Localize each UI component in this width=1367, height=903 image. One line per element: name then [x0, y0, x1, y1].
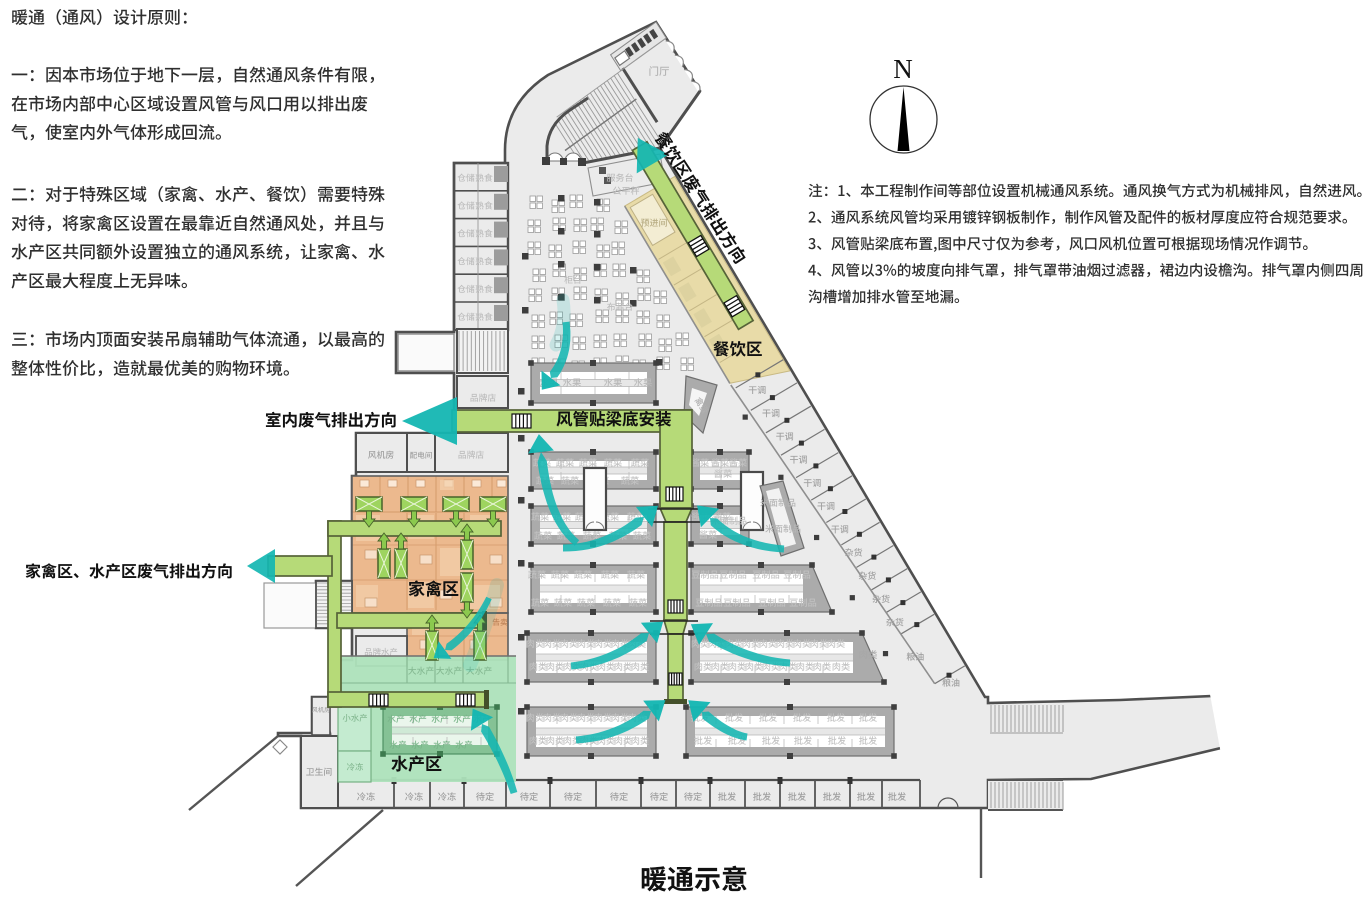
svg-text:N: N	[893, 54, 913, 84]
